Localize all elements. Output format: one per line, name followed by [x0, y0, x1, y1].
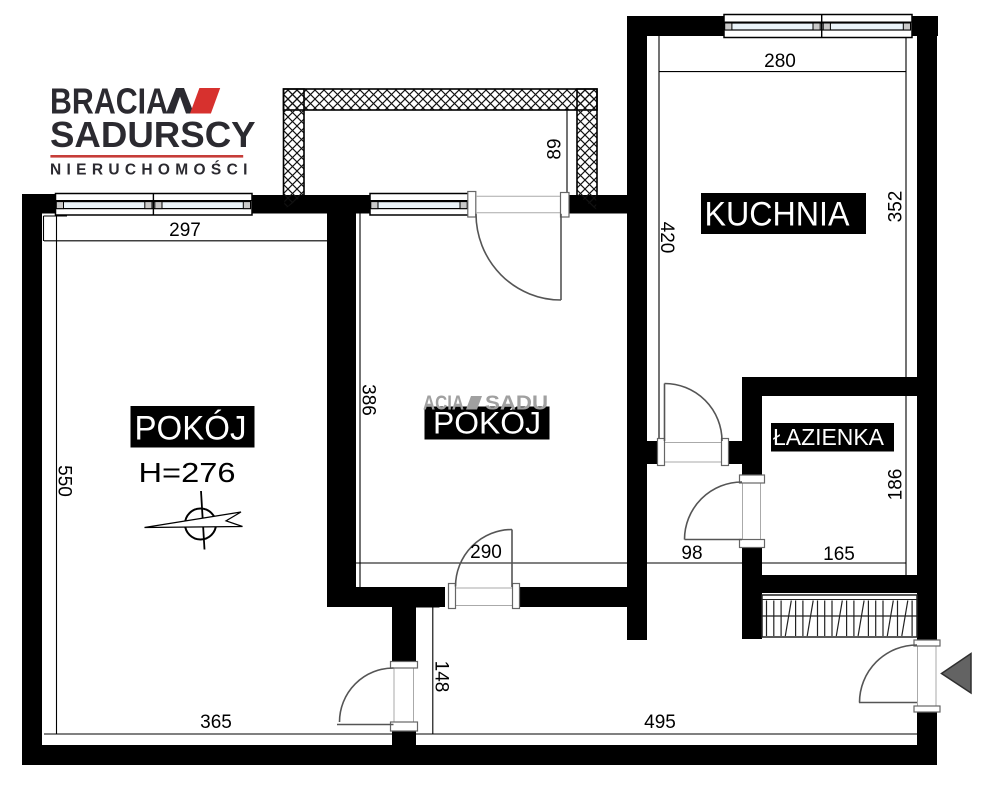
svg-text:SADU: SADU [485, 393, 548, 415]
svg-text:290: 290 [470, 542, 502, 563]
svg-text:98: 98 [681, 543, 702, 564]
svg-text:SADURSCY: SADURSCY [50, 114, 256, 155]
svg-text:KUCHNIA: KUCHNIA [705, 196, 850, 234]
svg-text:H=276: H=276 [139, 457, 236, 488]
svg-text:352: 352 [886, 191, 907, 223]
svg-text:386: 386 [358, 384, 379, 416]
svg-text:186: 186 [886, 469, 907, 501]
svg-text:165: 165 [823, 544, 855, 565]
svg-text:420: 420 [656, 222, 677, 254]
svg-text:ACIA: ACIA [423, 393, 464, 415]
svg-text:365: 365 [200, 712, 232, 733]
svg-text:POKÓJ: POKÓJ [135, 410, 247, 448]
svg-text:297: 297 [169, 220, 201, 241]
svg-text:ŁAZIENKA: ŁAZIENKA [773, 424, 884, 450]
svg-text:NIERUCHOMOŚCI: NIERUCHOMOŚCI [50, 161, 247, 179]
svg-text:550: 550 [53, 465, 74, 497]
svg-text:148: 148 [431, 661, 452, 693]
svg-text:89: 89 [545, 138, 566, 159]
svg-text:280: 280 [764, 51, 796, 72]
svg-text:495: 495 [644, 712, 676, 733]
